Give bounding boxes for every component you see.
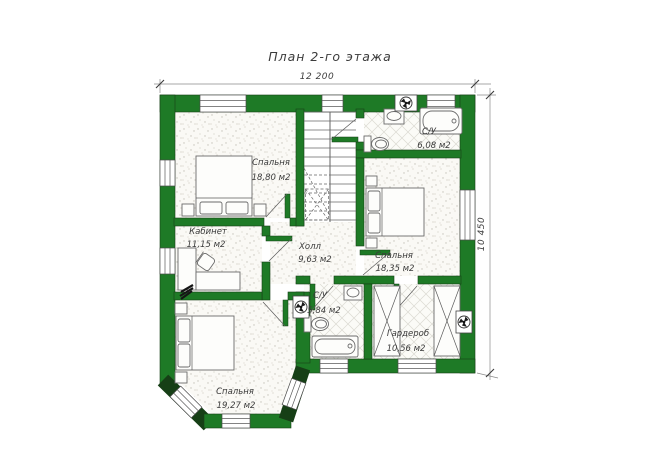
nightstand-icon	[175, 303, 187, 314]
wall-left	[160, 95, 175, 385]
svg-text:Холл: Холл	[298, 242, 321, 252]
window	[398, 359, 436, 373]
nightstand-icon	[366, 176, 377, 186]
svg-text:10,56 м2: 10,56 м2	[387, 344, 426, 354]
dimension-height-label: 10 450	[477, 217, 487, 252]
sink-icon	[344, 286, 362, 300]
svg-text:Кабинет: Кабинет	[189, 227, 228, 237]
toilet-icon	[364, 136, 389, 152]
svg-text:5,84 м2: 5,84 м2	[307, 306, 340, 316]
window	[460, 190, 475, 240]
floor-plan-canvas: 12 200 10 450 План 2-го этажа Спальня 18…	[0, 0, 665, 470]
window	[200, 95, 246, 112]
window	[322, 95, 343, 112]
svg-text:18,35 м2: 18,35 м2	[376, 264, 415, 274]
nightstand-icon	[366, 238, 377, 248]
svg-text:С/У: С/У	[313, 291, 328, 301]
fan-icon	[395, 95, 417, 111]
bathtub-icon	[312, 336, 358, 357]
svg-text:С/У: С/У	[422, 127, 437, 137]
dimension-width-label: 12 200	[300, 72, 335, 82]
svg-text:6,08 м2: 6,08 м2	[417, 141, 450, 151]
svg-text:19,27 м2: 19,27 м2	[217, 401, 256, 411]
window	[160, 248, 175, 274]
nightstand-icon	[175, 372, 187, 383]
svg-text:Спальня: Спальня	[375, 251, 413, 261]
nightstand-icon	[254, 204, 266, 216]
svg-text:Спальня: Спальня	[216, 387, 254, 397]
svg-text:Спальня: Спальня	[252, 158, 290, 168]
plan-title: План 2-го этажа	[268, 49, 392, 64]
dimension-right: 10 450	[477, 88, 498, 380]
window	[222, 414, 250, 428]
svg-text:9,63 м2: 9,63 м2	[298, 255, 331, 265]
svg-text:11,15 м2: 11,15 м2	[187, 240, 226, 250]
floor-hall	[270, 222, 356, 284]
svg-text:Гардероб: Гардероб	[387, 329, 429, 339]
fan-icon	[456, 311, 472, 333]
nightstand-icon	[182, 204, 194, 216]
window	[160, 160, 175, 186]
dimension-top: 12 200	[154, 72, 491, 93]
svg-text:18,80 м2: 18,80 м2	[252, 173, 291, 183]
floor-plan-page: 12 200 10 450 План 2-го этажа Спальня 18…	[0, 0, 665, 470]
window	[320, 359, 348, 373]
